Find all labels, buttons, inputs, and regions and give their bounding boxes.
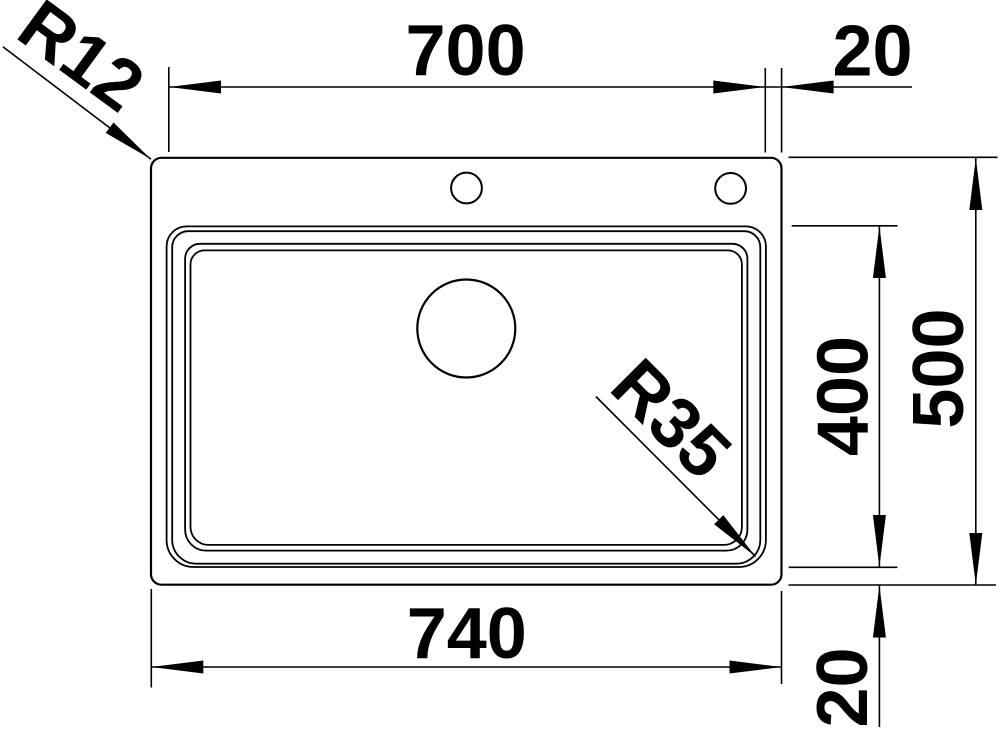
svg-text:R12: R12 <box>4 0 158 127</box>
svg-text:740: 740 <box>407 594 527 674</box>
svg-text:20: 20 <box>803 647 883 727</box>
svg-text:700: 700 <box>406 11 526 91</box>
svg-text:500: 500 <box>899 308 979 428</box>
svg-text:400: 400 <box>803 336 883 456</box>
svg-text:R35: R35 <box>596 344 746 494</box>
svg-text:20: 20 <box>832 12 912 92</box>
